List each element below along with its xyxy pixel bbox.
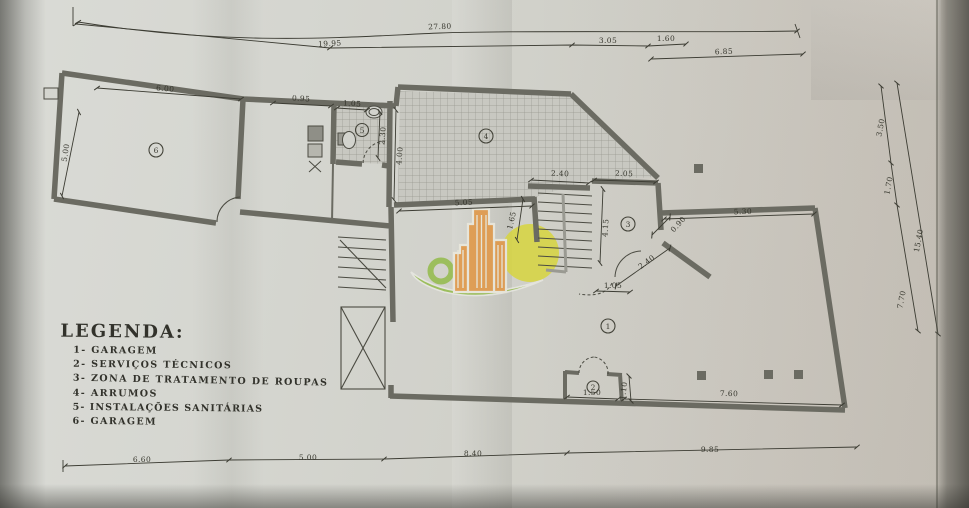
dim-label: 5.30 — [734, 207, 753, 217]
dim-label: 15.40 — [912, 228, 925, 253]
garage-ramp — [341, 307, 385, 389]
svg-text:3: 3 — [626, 220, 631, 229]
legend-item: 3- ZONA DE TRATAMENTO DE ROUPAS — [60, 372, 329, 388]
svg-text:6: 6 — [154, 146, 159, 155]
svg-text:4: 4 — [484, 132, 489, 141]
legend-item: 5- INSTALAÇÕES SANITÁRIAS — [60, 402, 328, 416]
legend: LEGENDA: 1- GARAGEM 2- SERVIÇOS TÉCNICOS… — [59, 321, 328, 430]
counter-icon — [308, 126, 323, 141]
service-fixtures — [308, 126, 323, 172]
floor-plan-photo: 27.80 19.95 3.05 1.60 6.85 6.00 5.00 0.9… — [0, 0, 969, 508]
dim-label: 4.00 — [394, 146, 405, 165]
dim-label: 2.40 — [636, 253, 656, 271]
dim-label: 1.60 — [657, 34, 675, 43]
toilet-icon — [343, 132, 356, 149]
room6-door-arc — [217, 197, 240, 222]
dim-label: 1.10 — [618, 381, 629, 400]
svg-text:1: 1 — [606, 322, 611, 331]
legend-item: 2- SERVIÇOS TÉCNICOS — [60, 359, 328, 373]
dim-label: 1.05 — [343, 99, 362, 109]
logo-sun-icon — [501, 224, 559, 282]
dim-label: 2.30 — [377, 126, 388, 145]
dim-label: 6.00 — [156, 83, 175, 94]
dim-line-room2-h — [629, 376, 631, 401]
columns — [694, 164, 803, 380]
washbasin-bowl-icon — [369, 109, 379, 116]
dim-label: 0.95 — [292, 94, 311, 104]
dim-label: 1.65 — [505, 211, 518, 231]
room-circle-6: 6 — [149, 143, 163, 157]
exterior-staircase — [338, 237, 386, 290]
dim-label: 4.15 — [600, 218, 610, 237]
floor-plan-drawing: 27.80 19.95 3.05 1.60 6.85 6.00 5.00 0.9… — [0, 0, 969, 508]
dim-label: 1.70 — [882, 176, 894, 196]
room2-door-left-arc — [579, 357, 594, 373]
sink-icon — [308, 144, 322, 157]
dim-label: 9.85 — [701, 445, 719, 454]
dim-line-room3-door — [596, 291, 630, 292]
dim-label: 6.60 — [133, 455, 151, 464]
legend-title: LEGENDA: — [60, 321, 329, 345]
dim-line-room2-w — [567, 397, 618, 399]
dim-label: 6.85 — [715, 47, 734, 57]
dim-label: 0.90 — [669, 215, 688, 235]
dim-label: 3.50 — [874, 118, 886, 138]
legend-item: 4- ARRUMOS — [60, 387, 328, 401]
dim-label: 2.40 — [551, 169, 570, 179]
dim-label: 19.95 — [318, 38, 342, 48]
room-circle-2: 2 — [587, 381, 599, 393]
dim-label: 1.05 — [604, 281, 622, 290]
dim-label: 7.60 — [720, 389, 738, 398]
room-circle-3: 3 — [621, 217, 635, 231]
dim-label: 27.80 — [428, 22, 452, 32]
dim-label: 8.40 — [464, 449, 482, 458]
logo-ring-icon — [431, 261, 452, 282]
dim-label: 2.05 — [615, 169, 634, 179]
svg-text:5: 5 — [360, 126, 365, 135]
dim-line-bottom — [65, 447, 857, 466]
room2-door-right-arc — [594, 357, 608, 374]
window-opening — [44, 88, 58, 99]
storage-tiled-floor — [398, 91, 656, 204]
dim-label: 5.05 — [455, 198, 474, 208]
dim-label: 3.05 — [599, 36, 617, 45]
floor-drain-icon — [309, 161, 321, 172]
dim-label: 5.00 — [299, 453, 317, 462]
room-circle-1: 1 — [601, 319, 615, 333]
svg-text:2: 2 — [591, 383, 596, 392]
legend-item: 1- GARAGEM — [60, 345, 328, 359]
dim-label: 7.70 — [895, 290, 907, 310]
